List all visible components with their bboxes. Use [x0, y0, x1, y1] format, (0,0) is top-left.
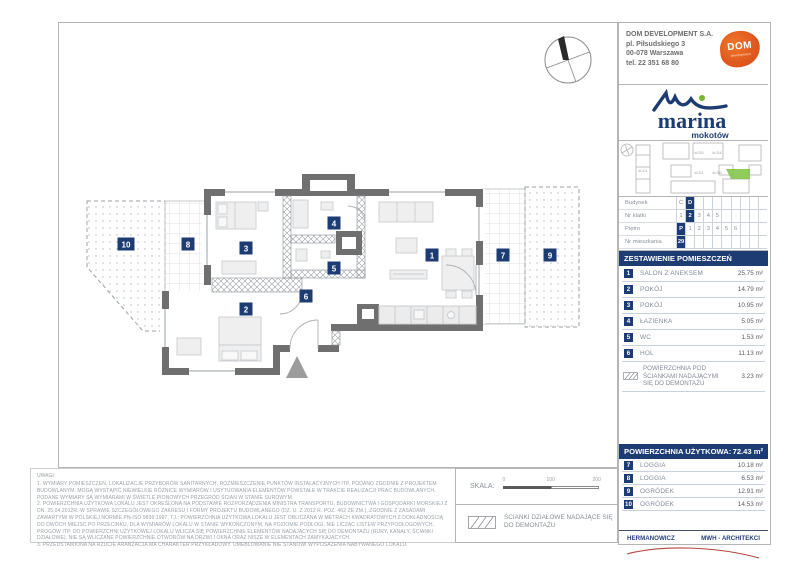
unit-table-cell: 1 — [676, 210, 685, 223]
brand-subname: mokotów — [691, 130, 729, 140]
unit-location-highlight — [726, 169, 750, 179]
room-name: WC — [635, 334, 741, 341]
unit-table-cell — [758, 210, 767, 223]
unit-table-cell — [758, 197, 767, 210]
garden-10-area — [87, 201, 165, 331]
architects-block: HERMANOWICZ MWH - ARCHITEKCI — [619, 530, 768, 565]
room-number-badge: 5 — [624, 333, 633, 342]
dom-development-logo: DOM development — [718, 29, 762, 69]
title-block: DOM DEVELOPMENT S.A. pl. Piłsudskiego 3 … — [618, 22, 771, 545]
developer-address1: pl. Piłsudskiego 3 — [626, 40, 713, 50]
outdoor-row: 7 LOGGIA 10.18 m² — [622, 459, 765, 472]
unit-table-cell — [740, 210, 749, 223]
svg-text:5: 5 — [332, 265, 337, 274]
legend-text: ŚCIANKI DZIAŁOWE NADAJĄCE SIĘ DO DEMONTA… — [504, 514, 613, 530]
developer-name: DOM DEVELOPMENT S.A. — [626, 30, 713, 40]
floorplan-area: 1 2 3 4 5 6 7 8 9 10 — [58, 22, 618, 468]
demountable-area-value: 3.23 m² — [741, 373, 765, 380]
unit-table-cell — [712, 197, 721, 210]
scale-bar-filled — [503, 486, 551, 489]
unit-table-cell — [758, 236, 767, 249]
svg-text:7: 7 — [501, 252, 506, 261]
unit-table-cell — [731, 210, 740, 223]
unit-table-cell — [685, 236, 694, 249]
unit-table-cell: 2 — [685, 210, 694, 223]
unit-table-cell: 5 — [721, 223, 730, 236]
room-area: 11.13 m² — [738, 350, 765, 357]
architect-right: MWH - ARCHITEKCI — [701, 535, 760, 542]
outdoor-name: OGRÓDEK — [635, 501, 738, 508]
marina-mokotow-logo: marina mokotów — [638, 88, 750, 140]
unit-locator-table: Budynek CD Nr klatki 12345 Piętro P12345… — [619, 197, 768, 251]
unit-table-cell — [749, 223, 758, 236]
unit-table-cell — [740, 236, 749, 249]
outdoor-number-badge: 9 — [624, 487, 633, 496]
notes-block: UWAGI: 1. WYMIARY POMIESZCZEŃ, LOKALIZAC… — [30, 468, 455, 543]
unit-table-cell — [731, 236, 740, 249]
room-name: POKÓJ — [635, 286, 738, 293]
entrance-arrow — [286, 356, 308, 378]
svg-text:10: 10 — [122, 241, 131, 250]
unit-table-cell — [703, 197, 712, 210]
unit-table-row: Nr mieszkania 29 — [619, 236, 768, 249]
developer-address2: 00-078 Warszawa — [626, 49, 713, 59]
svg-text:4: 4 — [332, 220, 337, 229]
room-name: HOL — [635, 350, 738, 357]
unit-table-row-label: Budynek — [619, 197, 676, 210]
svg-text:8: 8 — [186, 241, 191, 250]
outdoor-number-badge: 7 — [624, 461, 633, 470]
kitchen-counter — [379, 306, 476, 324]
room-name: SALON Z ANEKSEM — [635, 270, 738, 277]
demountable-area-row: POWIERZCHNIA POD ŚCIANKAMI NADAJĄCYMI SI… — [622, 362, 765, 392]
room-name: ŁAZIENKA — [635, 318, 741, 325]
rooms-summary: ZESTAWIENIE POMIESZCZEŃ 1 SALON Z ANEKSE… — [619, 251, 768, 444]
developer-phone: tel. 22 351 68 80 — [626, 59, 713, 69]
unit-table-cell: 4 — [712, 223, 721, 236]
developer-block: DOM DEVELOPMENT S.A. pl. Piłsudskiego 3 … — [619, 23, 768, 85]
unit-table-cell: 3 — [694, 210, 703, 223]
floorplan-drawing: 1 2 3 4 5 6 7 8 9 10 — [59, 23, 617, 467]
unit-table-cell — [758, 223, 767, 236]
room-row: 2 POKÓJ 14.79 m² — [622, 282, 765, 298]
outdoor-row: 10 OGRÓDEK 14.53 m² — [622, 498, 765, 511]
signature-flourish — [619, 542, 768, 560]
site-label: kl.D6 — [712, 170, 722, 175]
scale-tick: 200 — [593, 477, 601, 483]
site-plan-drawing: kl.C1 kl.D5 kl.D4 kl.D1 kl.D6 — [619, 141, 768, 196]
unit-table-cell — [740, 197, 749, 210]
notes-title: UWAGI: — [37, 473, 449, 479]
unit-table-row: Budynek CD — [619, 197, 768, 210]
room-row: 5 WC 1.53 m² — [622, 330, 765, 346]
svg-text:1: 1 — [430, 252, 435, 261]
outdoor-area: 12.91 m² — [738, 488, 765, 495]
brand-block: marina mokotów — [619, 85, 768, 141]
unit-table-cell — [731, 197, 740, 210]
unit-table-row-label: Nr klatki — [619, 210, 676, 223]
outdoor-number-badge: 10 — [624, 500, 633, 509]
floorplan-sheet: 1 2 3 4 5 6 7 8 9 10 DOM DEVELOPMENT S.A… — [0, 0, 800, 565]
demountable-area-name: POWIERZCHNIA POD ŚCIANKAMI NADAJĄCYMI SI… — [638, 365, 741, 388]
unit-table-cell — [712, 236, 721, 249]
unit-table-cell — [749, 197, 758, 210]
hatched-wall-legend-icon — [468, 516, 496, 529]
usable-area-header: POWIERZCHNIA UŻYTKOWA: 72.43 m² — [619, 444, 768, 459]
unit-table-cell — [749, 210, 758, 223]
unit-table-row-label: Piętro — [619, 223, 676, 236]
outdoor-area: 14.53 m² — [738, 501, 765, 508]
room-area: 5.05 m² — [741, 318, 765, 325]
legend-line1: ŚCIANKI DZIAŁOWE NADAJĄCE SIĘ — [504, 514, 613, 522]
svg-text:3: 3 — [244, 245, 249, 254]
unit-table-cell: P — [676, 223, 685, 236]
outdoor-area: 10.18 m² — [738, 462, 765, 469]
unit-table-cell — [721, 197, 730, 210]
usable-area-value: 72.43 m² — [733, 447, 763, 456]
outdoor-row: 9 OGRÓDEK 12.91 m² — [622, 485, 765, 498]
room-area: 10.95 m² — [738, 302, 765, 309]
unit-table-cell: 6 — [731, 223, 740, 236]
scale-bar: 0 100 200 — [503, 477, 599, 491]
note-item: 2. POWIERZCHNIA UŻYTKOWA LOKALU JEST OKR… — [37, 501, 449, 542]
outdoor-area: 6.53 m² — [741, 475, 765, 482]
site-plan: kl.C1 kl.D5 kl.D4 kl.D1 kl.D6 — [619, 141, 768, 197]
usable-area-block: POWIERZCHNIA UŻYTKOWA: 72.43 m² 7 LOGGIA… — [619, 444, 768, 544]
unit-table-row-label: Nr mieszkania — [619, 236, 676, 249]
room-name: POKÓJ — [635, 302, 738, 309]
unit-table-cell — [694, 236, 703, 249]
room-area: 1.53 m² — [741, 334, 765, 341]
unit-table-cell: 3 — [703, 223, 712, 236]
svg-text:9: 9 — [548, 252, 553, 261]
legend-block: ŚCIANKI DZIAŁOWE NADAJĄCE SIĘ DO DEMONTA… — [455, 504, 618, 543]
scale-block: SKALA: 0 100 200 — [455, 468, 618, 505]
unit-table-cell — [749, 236, 758, 249]
note-item: 1. WYMIARY POMIESZCZEŃ, LOKALIZACJE PRZY… — [37, 481, 449, 501]
unit-table-cell: 4 — [703, 210, 712, 223]
unit-table-cell — [721, 236, 730, 249]
room-number-badge: 1 — [624, 269, 633, 278]
room-row: 3 POKÓJ 10.95 m² — [622, 298, 765, 314]
outdoor-name: LOGGIA — [635, 462, 738, 469]
hatched-wall-icon — [623, 372, 638, 380]
unit-table-cell — [703, 236, 712, 249]
site-label: kl.C1 — [638, 168, 648, 173]
note-item: 3. PRZEDSTAWIONA NA RZUCIE ARANŻACJA MA … — [37, 542, 449, 549]
developer-info: DOM DEVELOPMENT S.A. pl. Piłsudskiego 3 … — [626, 30, 713, 68]
room-area: 25.75 m² — [738, 270, 765, 277]
site-label: kl.D1 — [694, 170, 704, 175]
site-label: kl.D4 — [712, 150, 722, 155]
unit-table-cell — [721, 210, 730, 223]
room-number-badge: 6 — [624, 349, 633, 358]
unit-table-cell: 29 — [676, 236, 685, 249]
outdoor-number-badge: 8 — [624, 474, 633, 483]
outdoor-row: 8 LOGGIA 6.53 m² — [622, 472, 765, 485]
svg-text:2: 2 — [244, 306, 249, 315]
green-dot-icon — [699, 95, 705, 101]
unit-table-cell: 2 — [694, 223, 703, 236]
scale-tick: 0 — [503, 477, 506, 483]
architect-left: HERMANOWICZ — [627, 535, 675, 542]
room-number-badge: 3 — [624, 301, 633, 310]
usable-area-label: POWIERZCHNIA UŻYTKOWA: — [624, 447, 731, 456]
unit-table-cell: C — [676, 197, 685, 210]
room-number-badge: 4 — [624, 317, 633, 326]
unit-table-row: Piętro P123456 — [619, 223, 768, 236]
room-row: 6 HOL 11.13 m² — [622, 346, 765, 362]
room-row: 4 ŁAZIENKA 5.05 m² — [622, 314, 765, 330]
unit-table-row: Nr klatki 12345 — [619, 210, 768, 223]
room-row: 1 SALON Z ANEKSEM 25.75 m² — [622, 266, 765, 282]
rooms-summary-title: ZESTAWIENIE POMIESZCZEŃ — [624, 254, 732, 263]
unit-table-cell — [694, 197, 703, 210]
scale-label: SKALA: — [470, 483, 495, 490]
svg-text:6: 6 — [304, 293, 309, 302]
unit-table-cell: D — [685, 197, 694, 210]
unit-table-cell: 5 — [712, 210, 721, 223]
room-number-badge: 2 — [624, 285, 633, 294]
outdoor-name: LOGGIA — [635, 475, 741, 482]
unit-table-cell — [740, 223, 749, 236]
legend-line2: DO DEMONTAŻU — [504, 522, 613, 530]
room-area: 14.79 m² — [738, 286, 765, 293]
site-label: kl.D5 — [694, 150, 704, 155]
rooms-summary-header: ZESTAWIENIE POMIESZCZEŃ — [619, 251, 768, 266]
north-compass-icon — [545, 36, 591, 83]
dom-logo-subtext: development — [730, 52, 750, 58]
unit-table-cell: 1 — [685, 223, 694, 236]
scale-bar-outline — [551, 486, 599, 489]
scale-tick: 100 — [547, 477, 555, 483]
outdoor-name: OGRÓDEK — [635, 488, 738, 495]
